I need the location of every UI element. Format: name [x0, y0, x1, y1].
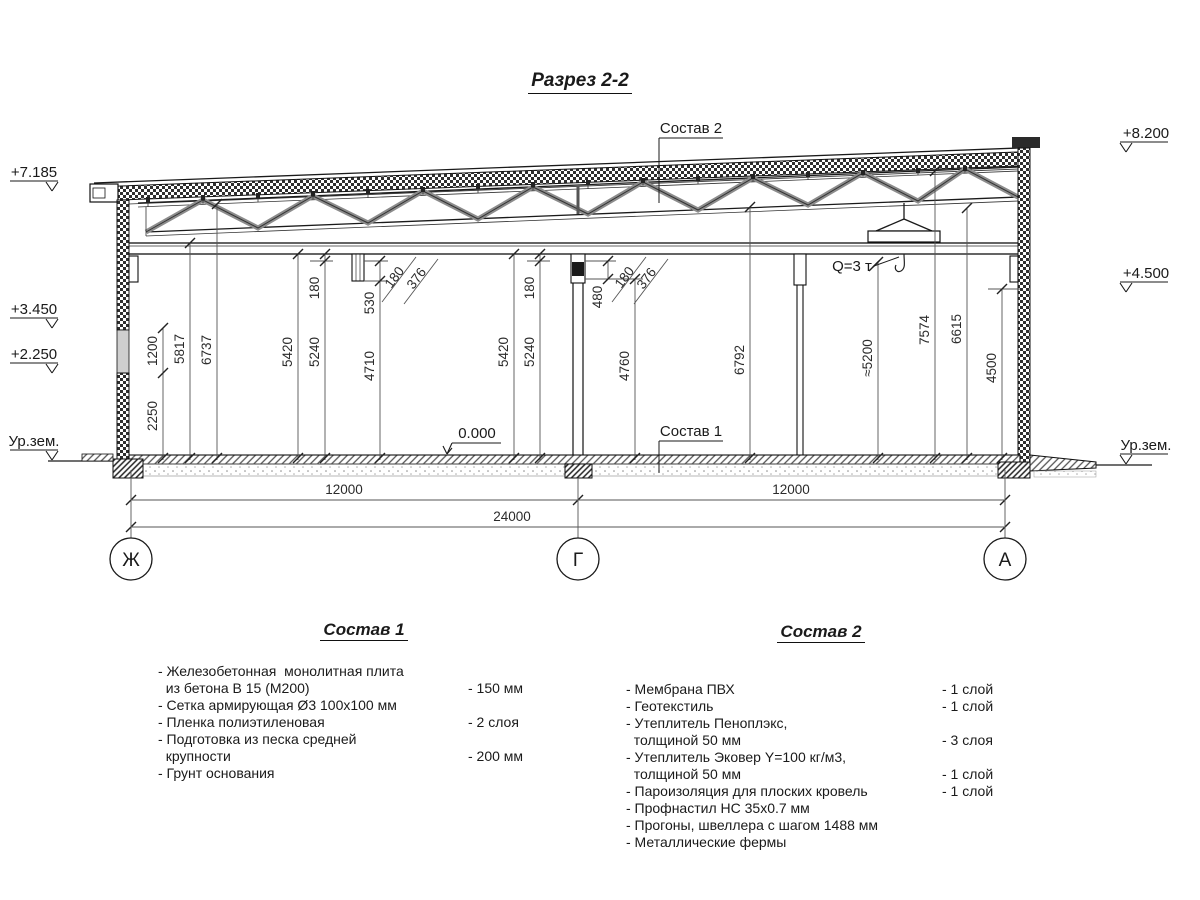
composition-2-title: Состав 2: [626, 622, 1016, 643]
floor: [48, 454, 1152, 478]
composition-1-block: Состав 1 - Железобетонная монолитная пли…: [158, 620, 570, 782]
dim-5817: 5817: [172, 334, 187, 364]
composition-item-qty: - 3 слоя: [936, 732, 993, 749]
composition-1-title: Состав 1: [158, 620, 570, 641]
axis-markers: Ж Г А: [110, 538, 1026, 580]
dim-530: 530: [362, 292, 377, 315]
composition-item: - Металлические фермы: [626, 834, 1016, 851]
right-hanger-post: [1010, 256, 1018, 282]
ceiling-beam: [127, 243, 1020, 254]
composition-item-text: - Утеплитель Пеноплэкс, толщиной 50 мм: [626, 715, 936, 749]
composition-item-qty: - 200 мм: [462, 748, 523, 765]
hanger-post-1: [352, 254, 364, 281]
composition-item-text: - Пароизоляция для плоских кровель: [626, 783, 936, 800]
composition-item: - Подготовка из песка средней крупности …: [158, 731, 570, 765]
axis-label-g: Г: [573, 550, 583, 571]
composition-item: - Утеплитель Пеноплэкс, толщиной 50 мм -…: [626, 715, 1016, 749]
crane-capacity-label: Q=3 т: [832, 258, 872, 275]
left-hanger-post: [129, 256, 138, 282]
dim-5420-b: 5420: [496, 337, 511, 367]
left-wall: [117, 200, 129, 462]
dim-bay1: 12000: [325, 482, 363, 497]
composition-item: - Пленка полиэтиленовая - 2 слоя: [158, 714, 570, 731]
composition-item-qty: - 1 слой: [936, 766, 993, 783]
composition-item: - Железобетонная монолитная плита из бет…: [158, 663, 570, 697]
composition-item: - Сетка армирующая Ø3 100х100 мм: [158, 697, 570, 714]
apron: [1030, 455, 1096, 471]
dim-total: 24000: [493, 509, 531, 524]
section-drawing: 1200 2250 5817 6737 5420 5240 180 530 47…: [0, 0, 1200, 610]
elevation-3450: +3.450: [11, 301, 57, 318]
composition-item-qty: - 1 слой: [936, 783, 993, 800]
dim-5240-b: 5240: [522, 337, 537, 367]
composition-2-block: Состав 2 - Мембрана ПВХ - 1 слой - Геоте…: [626, 622, 1016, 852]
composition-item: - Грунт основания: [158, 765, 570, 782]
roof: [90, 137, 1040, 204]
composition-2-list: - Мембрана ПВХ - 1 слой - Геотекстиль - …: [626, 681, 1016, 852]
composition-item-text: - Железобетонная монолитная плита из бет…: [158, 663, 462, 697]
elevation-ground-left: Ур.зем.: [9, 433, 60, 450]
elevation-2250: +2.250: [11, 346, 57, 363]
composition-item: - Пароизоляция для плоских кровель - 1 с…: [626, 783, 1016, 800]
crane-hook: [895, 254, 904, 272]
dim-4760: 4760: [617, 351, 632, 381]
dim-180-d: 180: [612, 264, 638, 291]
dim-480: 480: [590, 286, 605, 309]
parapet-cap: [1012, 137, 1040, 148]
dim-6792: 6792: [732, 345, 747, 375]
composition-item: - Профнастил НС 35х0.7 мм: [626, 800, 1016, 817]
floor-level-mark: 0.000: [443, 425, 501, 454]
composition-item-qty: - 1 слой: [936, 681, 993, 698]
composition-item: - Утеплитель Эковер Y=100 кг/м3, толщино…: [626, 749, 1016, 783]
middle-foundation: [565, 464, 592, 478]
columns: [129, 254, 1018, 457]
dim-4500: 4500: [984, 353, 999, 383]
dim-1200: 1200: [145, 336, 160, 366]
elevation-8200: +8.200: [1123, 125, 1169, 142]
dim-4710: 4710: [362, 351, 377, 381]
composition-item-qty: - 2 слоя: [462, 714, 519, 731]
composition-item-text: - Утеплитель Эковер Y=100 кг/м3, толщино…: [626, 749, 936, 783]
composition-item-text: - Сетка армирующая Ø3 100х100 мм: [158, 697, 462, 714]
elevation-marks-right: +8.200 +4.500 Ур.зем.: [1120, 125, 1171, 464]
composition-item-qty: - 150 мм: [462, 680, 523, 697]
dim-180-c: 180: [522, 277, 537, 300]
elevation-7185: +7.185: [11, 164, 57, 181]
elevation-4500: +4.500: [1123, 265, 1169, 282]
composition-item: - Геотекстиль - 1 слой: [626, 698, 1016, 715]
floor-level-label: 0.000: [458, 425, 496, 442]
dim-180-b: 180: [382, 264, 408, 291]
right-foundation: [998, 462, 1030, 478]
composition-item-text: - Мембрана ПВХ: [626, 681, 936, 698]
composition-item-text: - Грунт основания: [158, 765, 462, 782]
dim-2250: 2250: [145, 401, 160, 431]
composition-1-callout: Состав 1: [660, 423, 722, 440]
left-foundation: [113, 459, 143, 478]
elevation-ground-right: Ур.зем.: [1121, 437, 1172, 454]
dim-7574: 7574: [917, 314, 932, 345]
vertical-dimension-labels: 1200 2250 5817 6737 5420 5240 180 530 47…: [145, 264, 999, 431]
elevation-marks-left: +7.185 +3.450 +2.250 Ур.зем.: [9, 164, 60, 460]
axis-label-a: А: [999, 550, 1012, 571]
composition-item-qty: - 1 слой: [936, 698, 993, 715]
composition-item-text: - Прогоны, швеллера с шагом 1488 мм: [626, 817, 936, 834]
dim-5240-a: 5240: [307, 337, 322, 367]
dim-5200: ≈5200: [860, 339, 875, 376]
composition-item-text: - Профнастил НС 35х0.7 мм: [626, 800, 936, 817]
composition-item: - Мембрана ПВХ - 1 слой: [626, 681, 1016, 698]
composition-1-list: - Железобетонная монолитная плита из бет…: [158, 663, 570, 783]
axis-label-zh: Ж: [122, 550, 140, 571]
right-wall: [1018, 148, 1030, 462]
dim-5420-a: 5420: [280, 337, 295, 367]
left-wall-window: [117, 330, 129, 373]
composition-item-text: - Металлические фермы: [626, 834, 936, 851]
composition-item-text: - Геотекстиль: [626, 698, 936, 715]
dim-6615: 6615: [949, 314, 964, 344]
composition-2-callout: Состав 2: [660, 120, 722, 137]
floor-slab: [129, 455, 1020, 464]
dim-6737: 6737: [199, 335, 214, 365]
composition-item-text: - Пленка полиэтиленовая: [158, 714, 462, 731]
composition-item: - Прогоны, швеллера с шагом 1488 мм: [626, 817, 1016, 834]
dim-bay2: 12000: [772, 482, 810, 497]
dim-180-a: 180: [307, 277, 322, 300]
hanger-post-2: [794, 254, 806, 285]
composition-item-text: - Подготовка из песка средней крупности: [158, 731, 462, 765]
horizontal-dimensions: 12000 12000 24000: [131, 470, 1005, 538]
